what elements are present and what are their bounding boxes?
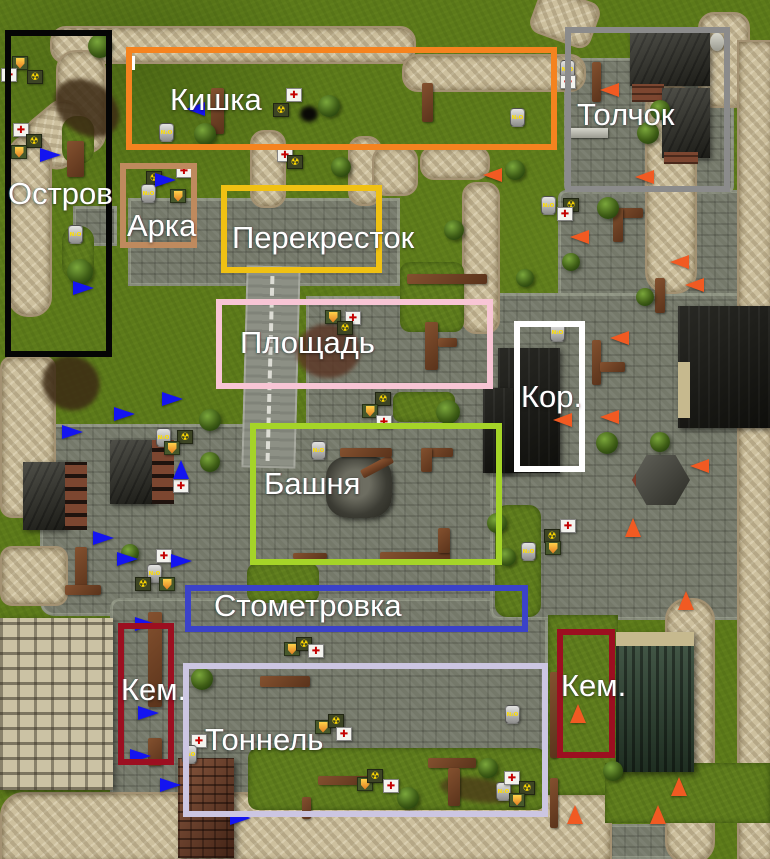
region-label-arka: Арка — [127, 210, 196, 243]
orange-marker-left-icon — [553, 413, 572, 427]
orange-marker-left-icon — [670, 255, 689, 269]
orange-marker-left-icon — [600, 410, 619, 424]
item-nitro-icon: N₂O — [505, 705, 520, 724]
orange-marker-left-icon — [610, 331, 629, 345]
item-radiation-icon: ☢ — [367, 769, 383, 783]
region-label-kem-left: Кем. — [121, 674, 186, 707]
item-shield-icon — [170, 189, 186, 203]
orange-marker-up-icon — [678, 591, 694, 610]
orange-marker-left-icon — [483, 168, 502, 182]
item-medkit-icon: ✚ — [560, 75, 576, 89]
item-nitro-icon: N₂O — [182, 745, 197, 764]
orange-marker-left-icon — [600, 83, 619, 97]
blue-marker-right-icon — [135, 617, 156, 631]
orange-marker-up-icon — [650, 805, 666, 824]
item-shield-icon — [159, 577, 175, 591]
region-label-bashnya: Башня — [264, 468, 360, 501]
item-nitro-icon: N₂O — [311, 441, 326, 460]
item-nitro-icon: N₂O — [510, 108, 525, 127]
region-label-kem-right: Кем. — [561, 670, 626, 703]
item-nitro-icon: N₂O — [68, 225, 83, 244]
orange-marker-left-icon — [685, 278, 704, 292]
item-shield-icon — [164, 441, 180, 455]
blue-marker-right-icon — [40, 148, 61, 162]
item-medkit-icon: ✚ — [336, 727, 352, 741]
item-radiation-icon: ☢ — [27, 70, 43, 84]
item-medkit-icon: ✚ — [557, 207, 573, 221]
item-radiation-icon: ☢ — [328, 714, 344, 728]
item-nitro-icon: N₂O — [541, 196, 556, 215]
region-label-tolchok: Толчок — [577, 99, 674, 132]
orange-marker-left-icon — [570, 230, 589, 244]
region-label-kishka: Кишка — [170, 84, 262, 117]
orange-marker-up-icon — [567, 805, 583, 824]
region-label-stometrovka: Стометровка — [214, 590, 402, 623]
game-map: ✚☢✚☢N₂O✚☢N₂ON₂O✚☢✚☢N₂ON₂O✚N₂O☢✚✚☢☢✚N₂ON₂… — [0, 0, 770, 859]
item-medkit-icon: ✚ — [560, 519, 576, 533]
item-medkit-icon: ✚ — [308, 644, 324, 658]
blue-marker-right-icon — [160, 778, 181, 792]
item-medkit-icon: ✚ — [504, 771, 520, 785]
item-nitro-icon: N₂O — [521, 542, 536, 561]
item-radiation-icon: ☢ — [273, 103, 289, 117]
blue-marker-right-icon — [230, 811, 251, 825]
item-nitro-icon: N₂O — [159, 123, 174, 142]
item-medkit-icon: ✚ — [173, 479, 189, 493]
region-label-ostrov: Остров — [8, 178, 113, 211]
blue-marker-right-icon — [117, 552, 138, 566]
blue-marker-right-icon — [155, 173, 176, 187]
region-label-kor: Кор. — [521, 381, 582, 414]
item-radiation-icon: ☢ — [287, 155, 303, 169]
blue-marker-up-icon — [173, 460, 189, 479]
region-label-tonnel: Тоннель — [205, 724, 323, 757]
blue-marker-right-icon — [171, 554, 192, 568]
blue-marker-right-icon — [114, 407, 135, 421]
blue-marker-right-icon — [73, 281, 94, 295]
item-medkit-icon: ✚ — [383, 779, 399, 793]
item-shield-icon — [509, 793, 525, 807]
annotation-layer: ✚☢✚☢N₂O✚☢N₂ON₂O✚☢✚☢N₂ON₂O✚N₂O☢✚✚☢☢✚N₂ON₂… — [0, 0, 770, 859]
blue-marker-right-icon — [93, 531, 114, 545]
item-shield-icon — [11, 145, 27, 159]
blue-marker-right-icon — [62, 425, 83, 439]
item-radiation-icon: ☢ — [135, 577, 151, 591]
item-medkit-icon: ✚ — [156, 549, 172, 563]
item-medkit-icon: ✚ — [376, 415, 392, 429]
item-nitro-icon: N₂O — [550, 323, 565, 342]
orange-marker-up-icon — [671, 777, 687, 796]
orange-marker-left-icon — [690, 459, 709, 473]
orange-marker-left-icon — [635, 170, 654, 184]
blue-marker-right-icon — [130, 749, 151, 763]
item-medkit-icon: ✚ — [1, 68, 17, 82]
item-shield-icon — [545, 541, 561, 555]
region-label-ploshchad: Площадь — [240, 327, 375, 360]
blue-marker-right-icon — [162, 392, 183, 406]
item-medkit-icon: ✚ — [286, 88, 302, 102]
orange-marker-up-icon — [625, 518, 641, 537]
blue-marker-right-icon — [138, 706, 159, 720]
item-medkit-icon: ✚ — [176, 164, 192, 178]
region-label-perekrestok: Перекресток — [232, 222, 414, 255]
item-nitro-icon: N₂O — [141, 184, 156, 203]
item-radiation-icon: ☢ — [26, 134, 42, 148]
orange-marker-up-icon — [570, 704, 586, 723]
